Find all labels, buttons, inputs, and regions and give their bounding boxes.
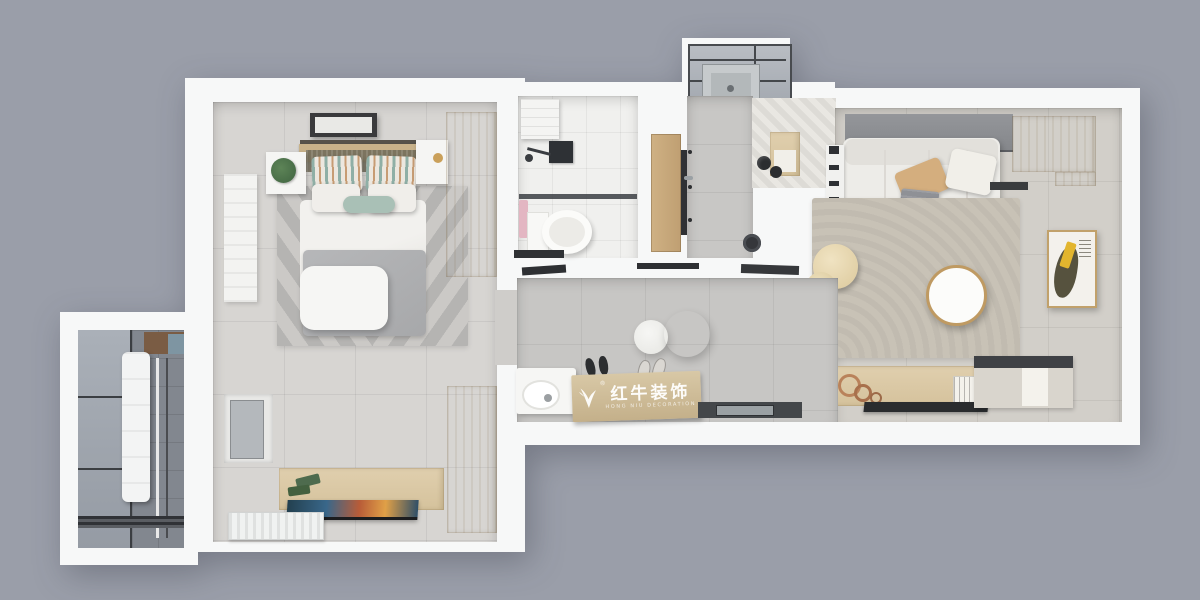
track-light-2 xyxy=(637,263,699,269)
toilet-seat xyxy=(549,217,585,247)
glass-partition xyxy=(519,194,637,199)
wardrobe-upper xyxy=(446,112,497,277)
ac-vent xyxy=(990,182,1028,190)
bath-storage-shelf xyxy=(521,99,559,139)
nightstand-decor xyxy=(433,153,443,163)
plant-icon xyxy=(271,158,296,183)
pendant-lamp-small xyxy=(634,320,668,354)
full-length-mirror xyxy=(224,174,257,302)
bull-logo-icon xyxy=(577,385,600,412)
washbasin-bowl xyxy=(522,380,560,410)
washbasin-vanity xyxy=(516,368,576,414)
sideboard-door xyxy=(1022,368,1048,406)
door-handle-icon xyxy=(684,176,693,180)
stool-dark-1 xyxy=(757,156,771,170)
toilet-bowl xyxy=(542,210,592,254)
glazing-bar-h1 xyxy=(690,59,786,61)
spotlight-1 xyxy=(688,150,692,154)
water-heater xyxy=(122,352,150,502)
bar-table-watermark: ® 红牛装饰 HONG NIU DECORATION xyxy=(571,371,702,422)
counter-sink xyxy=(716,405,774,416)
ceiling-light xyxy=(310,113,377,137)
corner-wood-cabinet xyxy=(1012,116,1096,172)
spotlight-2 xyxy=(688,185,692,189)
drying-rack-bar-2 xyxy=(166,358,168,538)
faucet-icon xyxy=(727,85,734,92)
corner-wood-cabinet-leg xyxy=(1055,172,1096,186)
teal-bolster xyxy=(343,196,395,213)
sideboard xyxy=(974,356,1073,408)
balcony-threshold xyxy=(78,516,184,528)
art-text-marks xyxy=(1079,240,1091,260)
shower-handset xyxy=(525,154,533,162)
balcony-blue-glass xyxy=(168,334,184,354)
entry-door xyxy=(651,134,681,252)
tv-panel xyxy=(863,402,988,412)
round-coffee-table xyxy=(926,265,987,326)
wall-art-frame xyxy=(1047,230,1097,308)
floor-plan-stage: ® 红牛装饰 HONG NIU DECORATION xyxy=(0,0,1200,600)
radiator xyxy=(228,512,324,540)
wardrobe-lower xyxy=(447,386,497,533)
washbasin-drain xyxy=(544,394,552,402)
white-ottoman xyxy=(300,266,388,330)
ceiling-light-panel xyxy=(315,117,372,133)
robot-vacuum-icon xyxy=(743,234,761,252)
pendant-lamp-large xyxy=(664,311,710,357)
window-bay xyxy=(224,394,273,463)
registered-mark: ® xyxy=(599,380,605,387)
slipper-dark-2 xyxy=(598,355,610,375)
entry-floor xyxy=(687,96,753,258)
nightstand-right xyxy=(416,140,448,184)
balcony-interior xyxy=(78,330,184,548)
counter-with-sink xyxy=(698,402,802,418)
shower-head-icon xyxy=(549,141,573,163)
sideboard-top xyxy=(974,356,1073,368)
spotlight-3 xyxy=(688,218,692,222)
stool-dark-2 xyxy=(770,166,782,178)
vanity-mirror-shelf xyxy=(514,250,564,258)
drying-rack-bar-1 xyxy=(156,358,159,538)
window-glass xyxy=(230,400,264,459)
entry-door-gap xyxy=(681,150,687,235)
